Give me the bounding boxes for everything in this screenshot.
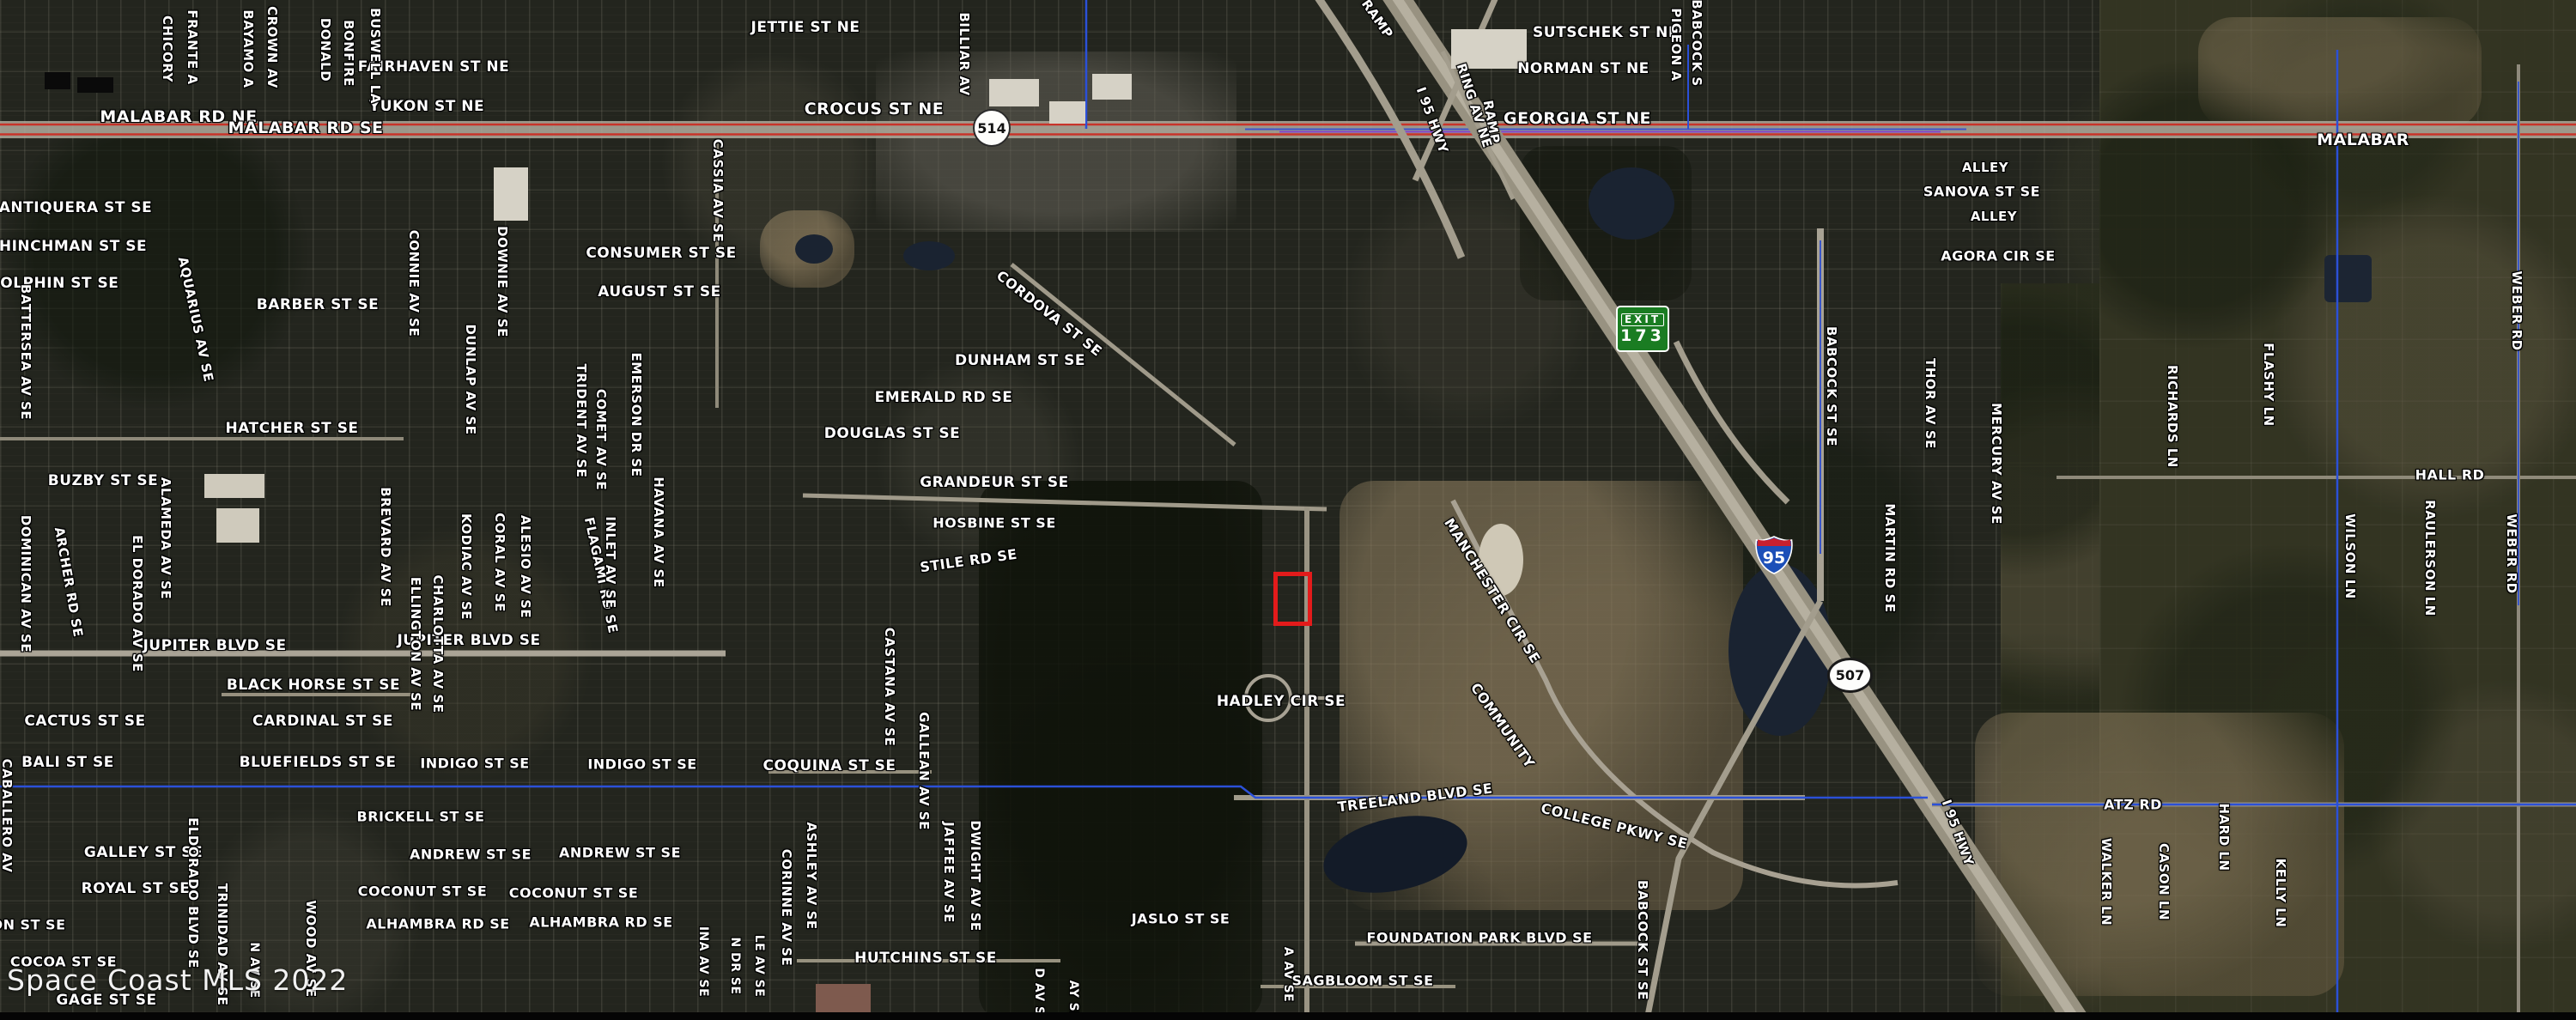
map-label-kodiac-av-se: KODIAC AV SE <box>459 513 474 620</box>
road-grandeur <box>803 495 1327 509</box>
map-label-emerson-dr-se: EMERSON DR SE <box>629 352 644 477</box>
map-label-babcock-s: BABCOCK S <box>1689 0 1704 87</box>
map-label-brevard-av-se: BREVARD AV SE <box>378 487 393 607</box>
building-commercial-3 <box>1092 74 1132 100</box>
map-label-trident-av-se: TRIDENT AV SE <box>574 363 589 477</box>
map-label-kelly-ln: KELLY LN <box>2273 859 2288 928</box>
map-label-charlotta-av-se: CHARLOTTA AV SE <box>430 575 446 713</box>
interstate-95-shield: 95 <box>1754 534 1794 579</box>
map-label-wilson-ln: WILSON LN <box>2342 513 2358 599</box>
map-label-walker-ln: WALKER LN <box>2099 838 2114 926</box>
map-label-hosbine-st-se: HOSBINE ST SE <box>933 515 1056 531</box>
map-label-weber-rd: WEBER RD <box>2504 513 2519 593</box>
building-commercial-1 <box>989 79 1039 106</box>
map-label-jettie-st-ne: JETTIE ST NE <box>751 19 860 36</box>
route-507-number: 507 <box>1836 667 1864 683</box>
map-label-flashy-ln: FLASHY LN <box>2261 343 2276 426</box>
map-label-andrew-st-se: ANDREW ST SE <box>559 845 681 861</box>
subject-property-marker <box>1273 572 1312 626</box>
map-label-downie-av-se: DOWNIE AV SE <box>495 226 510 337</box>
map-label-coconut-st-se: COCONUT ST SE <box>358 883 488 900</box>
map-label-crown-av: CROWN AV <box>264 6 280 88</box>
map-label-antiquera-st-se: ANTIQUERA ST SE <box>0 199 152 216</box>
map-label-barber-st-se: BARBER ST SE <box>257 296 379 313</box>
map-label-n-dr-se: N DR SE <box>728 937 742 994</box>
map-tag-2 <box>77 77 113 93</box>
map-label-yukon-st-ne: YUKON ST NE <box>369 98 484 115</box>
map-label-jaffee-av-se: JAFFEE AV SE <box>941 822 957 923</box>
map-label-mercury-av-se: MERCURY AV SE <box>1989 403 2004 525</box>
map-label-ashley-av-se: ASHLEY AV SE <box>804 822 819 929</box>
building-commercial-2 <box>1049 101 1085 124</box>
pond-east <box>2324 255 2372 302</box>
pond-north <box>1589 167 1674 240</box>
map-label-raulerson-ln: RAULERSON LN <box>2422 500 2438 616</box>
bottom-black-bar <box>0 1012 2576 1020</box>
map-label-dunham-st-se: DUNHAM ST SE <box>955 352 1085 369</box>
map-label-jaslo-st-se: JASLO ST SE <box>1132 911 1230 927</box>
map-label-grandeur-st-se: GRANDEUR ST SE <box>920 474 1069 491</box>
map-label-consumer-st-se: CONSUMER ST SE <box>586 245 736 262</box>
route-514-shield: 514 <box>973 109 1011 147</box>
map-label-castana-av-se: CASTANA AV SE <box>882 628 897 746</box>
building-school-2 <box>216 508 259 543</box>
map-label-gallean-av-se: GALLEAN AV SE <box>916 712 932 830</box>
map-label-hadley-cir-se: HADLEY CIR SE <box>1217 693 1346 710</box>
map-label-buswell-la: BUSWELL LA <box>368 8 383 104</box>
map-label-agora-cir-se: AGORA CIR SE <box>1941 248 2055 264</box>
route-507-shield: 507 <box>1827 658 1873 693</box>
map-label-alley: ALLEY <box>1971 209 2017 224</box>
map-label-sanova-st-se: SANOVA ST SE <box>1923 184 2040 200</box>
map-label-babcock-st-se: BABCOCK ST SE <box>1824 326 1839 446</box>
i95-shield-redband <box>1757 538 1790 546</box>
map-label-brickell-st-se: BRICKELL ST SE <box>357 809 485 825</box>
map-label-alameda-av-se: ALAMEDA AV SE <box>158 477 173 599</box>
building-school-1 <box>204 474 264 498</box>
map-label-cardinal-st-se: CARDINAL ST SE <box>252 713 393 730</box>
map-label-alley: ALLEY <box>1962 160 2008 175</box>
exit-sign-word: EXIT <box>1621 313 1664 326</box>
map-label-le-av-se: LE AV SE <box>752 935 766 998</box>
aerial-map: MALABAR RD NEMALABAR RD SECROCUS ST NEGE… <box>0 0 2576 1020</box>
map-label-dominican-av-se: DOMINICAN AV SE <box>18 515 33 653</box>
map-label-indigo-st-se: INDIGO ST SE <box>587 756 696 773</box>
map-label-norman-st-ne: NORMAN ST NE <box>1517 60 1649 77</box>
map-label-black-horse-st-se: BLACK HORSE ST SE <box>227 677 400 694</box>
map-label-georgia-st-ne: GEORGIA ST NE <box>1504 109 1651 128</box>
map-label-cason-ln: CASON LN <box>2156 843 2172 920</box>
map-label-alhambra-rd-se: ALHAMBRA RD SE <box>529 914 672 931</box>
map-label-bayamo-a: BAYAMO A <box>240 9 256 88</box>
map-label-babcock-st-se: BABCOCK ST SE <box>1635 880 1650 1000</box>
map-label-alhambra-rd-se: ALHAMBRA RD SE <box>366 916 509 932</box>
building-tall <box>494 167 528 221</box>
map-label-martin-rd-se: MARTIN RD SE <box>1882 503 1898 612</box>
map-label-foundation-park-blvd-se: FOUNDATION PARK BLVD SE <box>1366 930 1592 946</box>
map-label-billiar-av: BILLIAR AV <box>957 12 972 95</box>
map-label-cactus-st-se: CACTUS ST SE <box>24 713 145 730</box>
map-label-coral-av-se: CORAL AV SE <box>492 513 507 612</box>
map-label-crocus-st-ne: CROCUS ST NE <box>805 100 945 118</box>
map-label-andrew-st-se: ANDREW ST SE <box>410 847 532 863</box>
map-label-inlet-av-se: INLET AV SE <box>603 516 618 608</box>
exit-sign-number: 173 <box>1620 326 1665 345</box>
map-label-hard-ln: HARD LN <box>2216 804 2232 871</box>
map-label-royal-st-se: ROYAL ST SE <box>82 880 191 897</box>
map-label-on-st-se: ON ST SE <box>0 917 66 933</box>
map-label-comet-av-se: COMET AV SE <box>593 389 609 490</box>
map-label-corinne-av-se: CORINNE AV SE <box>779 849 794 966</box>
map-label-coconut-st-se: COCONUT ST SE <box>509 885 639 902</box>
map-label-havana-av-se: HAVANA AV SE <box>651 477 666 587</box>
map-label-jupiter-blvd-se: JUPITER BLVD SE <box>143 637 286 654</box>
map-label-sutschek-st-ne: SUTSCHEK ST NE <box>1533 24 1679 41</box>
pond-emerald <box>903 241 955 270</box>
map-label-cassia-av-se: CASSIA AV SE <box>710 139 726 242</box>
map-label-coquina-st-se: COQUINA ST SE <box>763 757 896 774</box>
pond-cassia <box>795 234 833 264</box>
map-label-atz-rd: ATZ RD <box>2104 797 2162 813</box>
map-label-alesio-av-se: ALESIO AV SE <box>518 515 533 618</box>
map-label-thor-av-se: THOR AV SE <box>1923 358 1938 449</box>
map-label-connie-av-se: CONNIE AV SE <box>406 230 422 337</box>
map-label-buzby-st-se: BUZBY ST SE <box>48 472 158 489</box>
map-label-sagbloom-st-se: SAGBLOOM ST SE <box>1291 973 1433 989</box>
map-label-el-dorado-av-se: EL DORADO AV SE <box>130 535 145 672</box>
wetland-treeland <box>1316 804 1474 905</box>
map-label-douglas-st-se: DOUGLAS ST SE <box>824 425 961 442</box>
map-label-august-st-se: AUGUST ST SE <box>598 283 721 301</box>
i95-number: 95 <box>1763 549 1785 568</box>
map-label-hutchins-st-se: HUTCHINS ST SE <box>854 950 997 967</box>
map-label-dunlap-av-se: DUNLAP AV SE <box>463 324 478 434</box>
mls-watermark: Space Coast MLS 2022 <box>7 963 348 997</box>
map-label-ellington-av-se: ELLINGTON AV SE <box>408 577 423 711</box>
map-label-hall-rd: HALL RD <box>2415 467 2485 483</box>
map-label-malabar: MALABAR <box>2317 131 2409 149</box>
map-label-bonfire: BONFIRE <box>341 20 356 87</box>
map-label-dwight-av-se: DWIGHT AV SE <box>968 820 983 931</box>
exit-173-sign: EXIT 173 <box>1616 306 1669 352</box>
map-label-pigeon-a: PIGEON A <box>1668 8 1684 81</box>
map-label-donald: DONALD <box>318 18 333 82</box>
map-label-hinchman-st-se: HINCHMAN ST SE <box>0 238 147 255</box>
map-label-eldorado-blvd-se: ELDORADO BLVD SE <box>185 817 201 968</box>
map-label-chicory: CHICORY <box>160 15 175 82</box>
map-label-indigo-st-se: INDIGO ST SE <box>420 756 529 772</box>
map-label-bali-st-se: BALI ST SE <box>21 754 114 771</box>
map-label-frante-a: FRANTE A <box>185 9 200 84</box>
map-label-ina-av-se: INA AV SE <box>696 926 710 997</box>
map-label-richards-ln: RICHARDS LN <box>2165 365 2180 468</box>
map-label-emerald-rd-se: EMERALD RD SE <box>875 389 1013 406</box>
route-514-number: 514 <box>977 120 1005 137</box>
map-tag-1 <box>45 72 70 89</box>
map-label-weber-rd: WEBER RD <box>2509 270 2524 350</box>
map-label-battersea-av-se: BATTERSEA AV SE <box>18 284 33 420</box>
map-label-malabar-rd-se: MALABAR RD SE <box>228 118 383 137</box>
map-label-bluefields-st-se: BLUEFIELDS ST SE <box>240 754 397 771</box>
map-label-caballero-av: CABALLERO AV <box>0 759 15 873</box>
map-label-hatcher-st-se: HATCHER ST SE <box>225 420 358 437</box>
